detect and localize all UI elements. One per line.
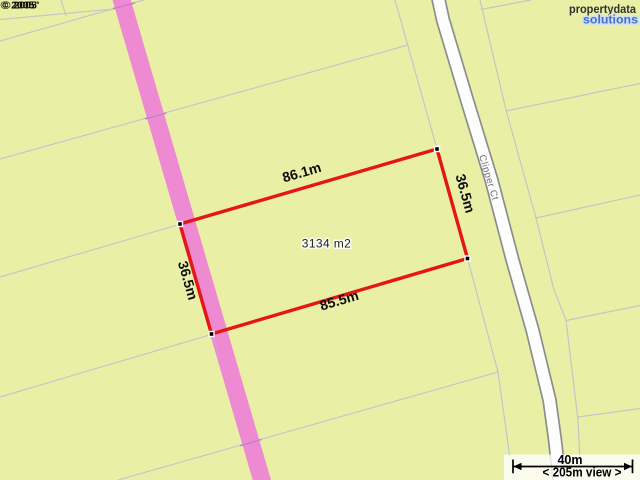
svg-text:3134 m2: 3134 m2 [302,236,352,250]
svg-text:© 2005': © 2005' [3,0,40,12]
svg-text:< 205m view >: < 205m view > [543,465,622,480]
svg-text:solutions: solutions [583,15,638,27]
